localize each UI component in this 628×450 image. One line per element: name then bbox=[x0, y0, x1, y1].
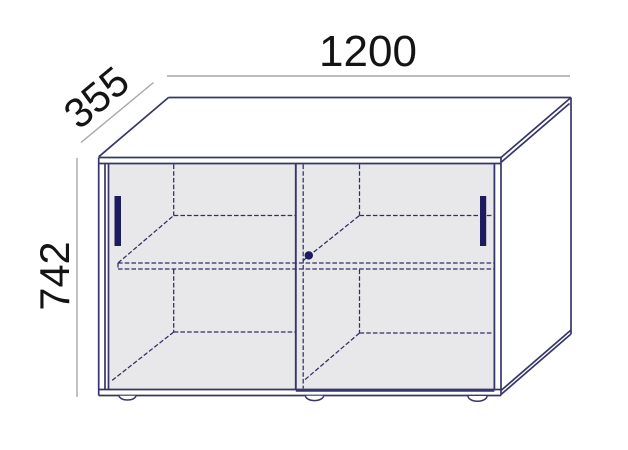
svg-text:742: 742 bbox=[31, 241, 78, 310]
svg-text:1200: 1200 bbox=[319, 27, 417, 76]
